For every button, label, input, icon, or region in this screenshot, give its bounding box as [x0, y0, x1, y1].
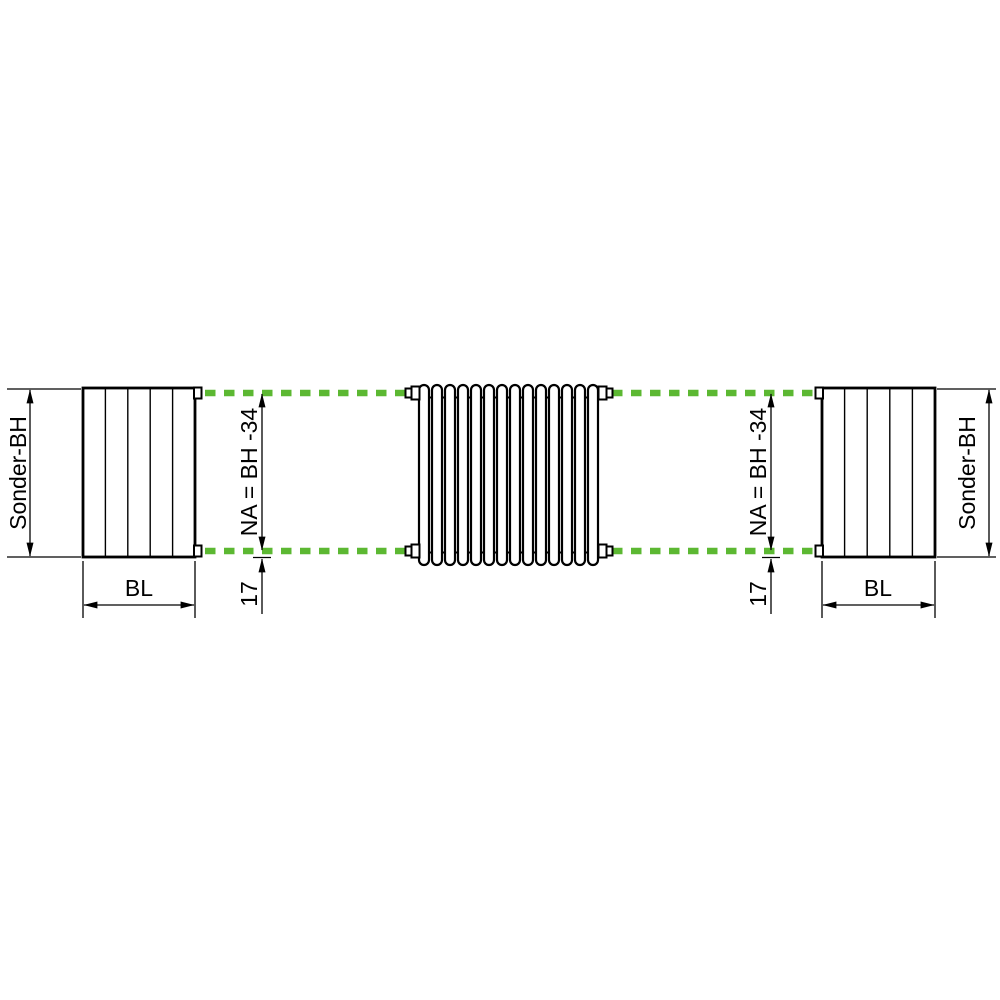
right-block-top-nipple — [816, 388, 824, 399]
diagram-svg: Sonder-BH BL NA = BH -34 17 NA = BH -3 — [0, 0, 1000, 1000]
radiator-tube — [419, 385, 429, 565]
nipple-collar — [412, 387, 420, 400]
left-axis-dimension: NA = BH -34 17 — [236, 394, 271, 614]
left-block-top-nipple — [194, 388, 202, 399]
right-height-label: Sonder-BH — [954, 416, 980, 530]
nipple-stub — [406, 389, 412, 398]
right-axis-dimension: NA = BH -34 17 — [745, 394, 780, 614]
radiator-tube — [536, 385, 546, 565]
radiator-tube — [484, 385, 494, 565]
right-radiator-side-view — [816, 388, 936, 558]
radiator-tube — [575, 385, 585, 565]
left-radiator-side-view — [83, 388, 202, 558]
right-axis-label: NA = BH -34 — [745, 408, 771, 537]
left-offset-label: 17 — [236, 581, 262, 607]
radiator-tubes — [419, 385, 598, 565]
right-offset-label: 17 — [745, 581, 771, 607]
radiator-tube — [445, 385, 455, 565]
right-block-bottom-nipple — [816, 546, 824, 557]
left-block-outline — [83, 388, 195, 557]
radiator-tube — [549, 385, 559, 565]
radiator-dimension-diagram: Sonder-BH BL NA = BH -34 17 NA = BH -3 — [0, 0, 1000, 1000]
radiator-tube — [523, 385, 533, 565]
left-width-label: BL — [125, 575, 153, 601]
radiator-tube — [510, 385, 520, 565]
nipple-stub — [406, 547, 412, 556]
radiator-tube — [497, 385, 507, 565]
radiator-tube — [458, 385, 468, 565]
center-radiator-front-view — [406, 385, 613, 565]
nipple-stub — [607, 547, 613, 556]
nipple-collar — [599, 545, 607, 558]
nipple-stub — [607, 389, 613, 398]
left-block-bottom-nipple — [194, 546, 202, 557]
left-height-label: Sonder-BH — [5, 416, 31, 530]
radiator-tube — [432, 385, 442, 565]
right-block-outline — [822, 388, 935, 557]
nipple-collar — [412, 545, 420, 558]
radiator-tube — [588, 385, 598, 565]
radiator-tube — [562, 385, 572, 565]
radiator-tube — [471, 385, 481, 565]
nipple-collar — [599, 387, 607, 400]
left-axis-label: NA = BH -34 — [236, 408, 262, 537]
right-width-label: BL — [864, 575, 892, 601]
